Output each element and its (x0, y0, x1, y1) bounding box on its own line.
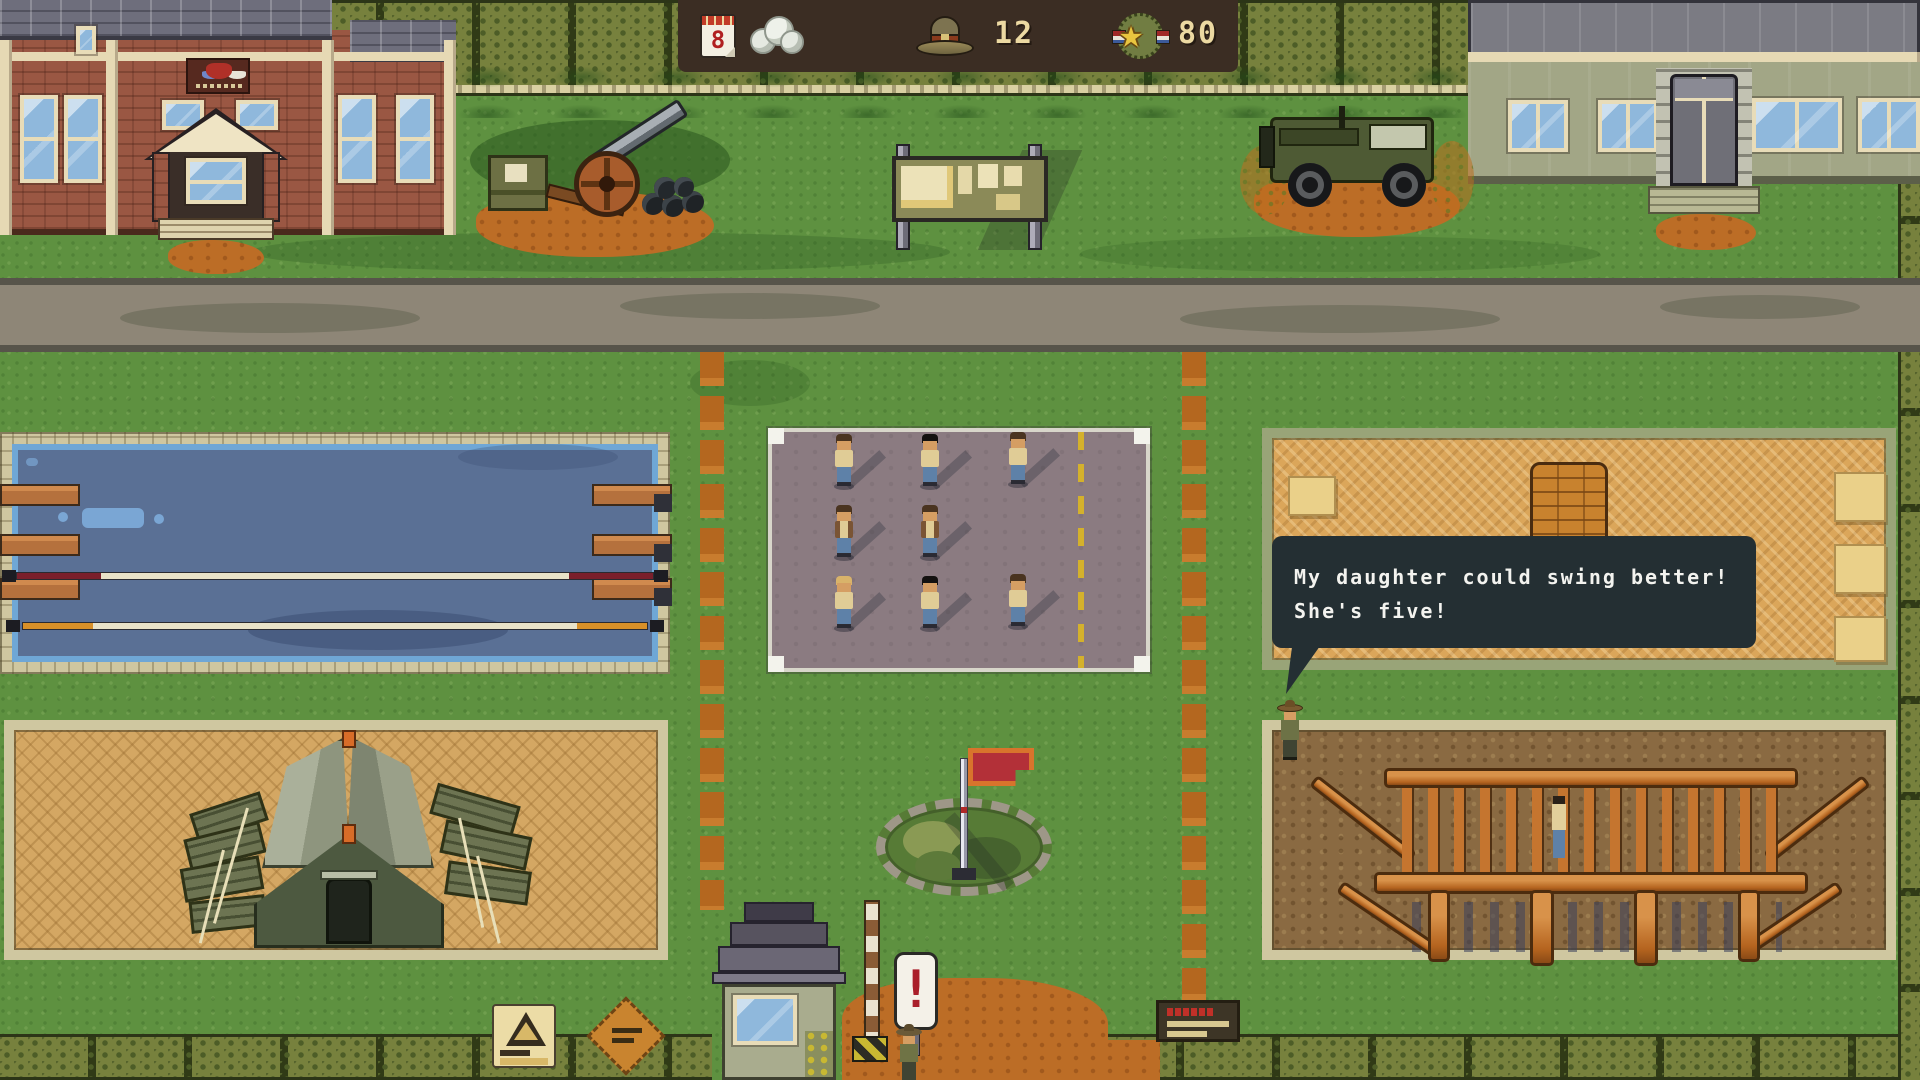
hq-sign-plaque (186, 58, 250, 94)
recruit[interactable] (832, 576, 856, 632)
sign-text-bar (500, 1058, 548, 1065)
gate-exclamation-sign[interactable]: ! (894, 952, 938, 1030)
hq-pilaster (322, 40, 334, 235)
admin-window (1598, 100, 1658, 152)
hq-door-dirt (168, 240, 264, 274)
bubble-line-1: My daughter could swing better! (1294, 560, 1734, 594)
bars-rail-top (1384, 768, 1798, 788)
ammo-crate (488, 155, 548, 211)
guard-roof (718, 946, 840, 972)
schedule-bar (1167, 1021, 1229, 1027)
hq-porch-steps (158, 218, 274, 240)
tent-pennant-icon (342, 824, 356, 844)
rope-anchor (2, 570, 16, 582)
sergeant-hat-top (1285, 700, 1295, 707)
board-paper (901, 166, 953, 208)
admin-building[interactable] (1468, 0, 1920, 222)
admin-steps (1648, 186, 1760, 214)
medal-star: ★ (1119, 12, 1143, 56)
schedule-dots (1167, 1008, 1215, 1016)
climber-hair (1553, 796, 1565, 804)
cloud-puff (780, 30, 804, 54)
flag-pole (960, 758, 968, 874)
jeep[interactable] (1240, 85, 1470, 245)
schedule-bar (1167, 1031, 1207, 1037)
guard-post[interactable] (710, 900, 860, 1080)
bars-post (1530, 890, 1554, 966)
exclamation-icon: ! (900, 960, 931, 1020)
gate-dirt-road (900, 1040, 1160, 1080)
recruit[interactable] (832, 505, 856, 561)
gate-barrier[interactable] (864, 900, 880, 1050)
board-paper (996, 194, 1020, 210)
sign-text-bar (500, 1050, 530, 1056)
bars-post (1634, 890, 1658, 966)
hud-bar: 8 12 ★ 80 (678, 0, 1238, 72)
guard-wall (722, 984, 836, 1080)
guard-jacket (900, 1044, 918, 1062)
board-paper (958, 166, 972, 194)
wheel-hub (599, 176, 615, 192)
square-corner (1134, 656, 1150, 672)
pole-base (952, 868, 976, 880)
sergeant-face (1284, 712, 1296, 720)
recruit[interactable] (918, 576, 942, 632)
drill-sergeant[interactable] (1276, 700, 1304, 762)
rope-end (577, 623, 647, 629)
guard-face (903, 1036, 915, 1044)
recruit[interactable] (918, 434, 942, 490)
rope-anchor (654, 570, 668, 582)
climber-jeans (1553, 830, 1565, 858)
square-corner (768, 428, 784, 444)
schedule-sign[interactable] (1156, 1000, 1240, 1042)
platform-block (654, 588, 672, 606)
recruit[interactable] (1006, 432, 1030, 488)
merit-count: 80 (1178, 16, 1218, 51)
hq-building[interactable] (0, 0, 456, 300)
notice-board[interactable] (880, 130, 1080, 260)
water-shade (458, 444, 618, 470)
tent-door-lintel (320, 870, 378, 880)
road-stain (1180, 305, 1500, 333)
autumn-bush (1430, 141, 1474, 215)
hq-sign-text (196, 84, 242, 88)
guard-hat-top (904, 1024, 914, 1031)
admin-window (1858, 98, 1920, 152)
jeep-wheel (1382, 163, 1426, 207)
guard-pants (902, 1062, 916, 1080)
guard-camo-patch (805, 1031, 833, 1077)
speech-bubble: My daughter could swing better! She's fi… (1272, 536, 1756, 648)
hq-window (396, 95, 434, 183)
hq-window (338, 95, 376, 183)
lane-rope (16, 572, 654, 580)
warning-sign[interactable] (492, 1004, 556, 1068)
recruit[interactable] (918, 505, 942, 561)
hq-roof (0, 0, 332, 40)
diving-platform (0, 484, 80, 506)
gate-guard[interactable] (896, 1026, 922, 1080)
water-shade (248, 610, 508, 650)
ammo-strap (491, 190, 545, 195)
hq-emblem-icon (206, 63, 232, 79)
climber-shirt (1552, 804, 1566, 830)
board-paper (978, 164, 998, 188)
rope-end (569, 573, 653, 579)
calendar-day: 8 (702, 26, 734, 54)
yellow-dash-line (1078, 432, 1084, 668)
jeep-steering (1339, 106, 1345, 128)
admin-window (1752, 98, 1842, 152)
admin-door-dirt (1656, 214, 1756, 250)
sergeant-pants (1283, 740, 1297, 760)
hq-pilaster (0, 40, 12, 235)
jeep-wheel (1288, 163, 1332, 207)
board-panel (892, 156, 1048, 222)
hq-porch-window (186, 158, 246, 204)
jeep-grille (1259, 126, 1275, 168)
climbing-recruit[interactable] (1550, 796, 1568, 862)
tent-yard[interactable] (4, 720, 668, 960)
calendar-header (702, 16, 734, 25)
calendar-icon[interactable]: 8 (700, 14, 736, 58)
admin-window (1508, 100, 1568, 152)
dirt-trail-left (700, 352, 724, 910)
recruit[interactable] (1006, 574, 1030, 630)
dirt-trail-right (1182, 352, 1206, 1014)
medal-ribbon (1156, 30, 1170, 44)
training-mat (1834, 472, 1886, 522)
recruits-count: 12 (994, 16, 1034, 51)
water-highlight (154, 514, 164, 524)
rope-anchor (6, 620, 20, 632)
hq-pilaster (444, 40, 456, 235)
admin-door[interactable] (1670, 74, 1738, 186)
monkey-bars-yard[interactable] (1262, 720, 1896, 960)
cannon-display[interactable] (470, 85, 720, 265)
hq-window (64, 95, 102, 183)
platform-block (654, 544, 672, 562)
water-highlight (26, 458, 38, 466)
hq-attic-window (76, 26, 96, 54)
star-medal-icon[interactable]: ★ (1114, 10, 1168, 62)
jeep-windshield (1369, 124, 1427, 150)
road-stain (120, 303, 420, 333)
admin-door-transom (1675, 79, 1733, 101)
hq-window-small (236, 100, 278, 130)
admin-fascia (1468, 52, 1920, 62)
hq-porch-post (262, 152, 280, 222)
cannonball-pile-icon (642, 177, 704, 221)
jeep-seats (1279, 128, 1359, 146)
diving-platform (0, 534, 80, 556)
hq-pilaster (106, 40, 118, 235)
road-stain (1660, 295, 1860, 319)
rope-end (23, 623, 93, 629)
hat-brim (916, 40, 974, 56)
board-paper (1004, 166, 1022, 186)
training-mat (1288, 476, 1336, 516)
rope-end (17, 573, 101, 579)
guard-roof (730, 922, 828, 946)
admin-roof (1468, 0, 1920, 54)
swimming-pool[interactable] (0, 432, 670, 674)
road-stain (620, 293, 880, 319)
sergeant-jacket (1281, 720, 1299, 740)
guard-roof (744, 902, 814, 922)
lane-rope (22, 622, 648, 630)
bars-post (1428, 890, 1450, 962)
training-mat (1834, 544, 1886, 594)
hq-porch-post (152, 152, 170, 222)
cannonball (674, 177, 694, 197)
ammo-paper (505, 164, 527, 182)
pole-band (961, 807, 967, 813)
cannon-wheel-icon (574, 151, 640, 217)
hazard-sign-text (612, 1038, 634, 1043)
water-highlight (58, 512, 68, 522)
guard-eaves (712, 972, 846, 984)
campaign-hat-icon[interactable] (916, 12, 974, 60)
hazard-sign-text (612, 1028, 642, 1033)
bars-post (1738, 890, 1760, 962)
water-highlight (82, 508, 144, 528)
rope-anchor (650, 620, 664, 632)
bubble-line-2: She's five! (1294, 594, 1734, 628)
cannonball (654, 177, 676, 199)
red-flag-icon (968, 748, 1034, 786)
square-corner (1134, 428, 1150, 444)
training-mat (1834, 616, 1886, 662)
flag-monument[interactable] (876, 748, 1056, 900)
recruit[interactable] (832, 434, 856, 490)
rung-shadows (1412, 902, 1782, 952)
guard-window (733, 995, 797, 1045)
training-camp-scene: ! My daughter could swing better! She's … (0, 0, 1920, 1080)
cloud-icon[interactable] (750, 14, 806, 58)
right-fence (1898, 96, 1920, 1080)
barrier-base (852, 1036, 888, 1062)
square-corner (768, 656, 784, 672)
platform-block (654, 494, 672, 512)
army-tent[interactable] (254, 738, 444, 948)
tent-door[interactable] (326, 878, 372, 944)
hq-window (20, 95, 58, 183)
tent-pennant-icon (342, 730, 356, 748)
